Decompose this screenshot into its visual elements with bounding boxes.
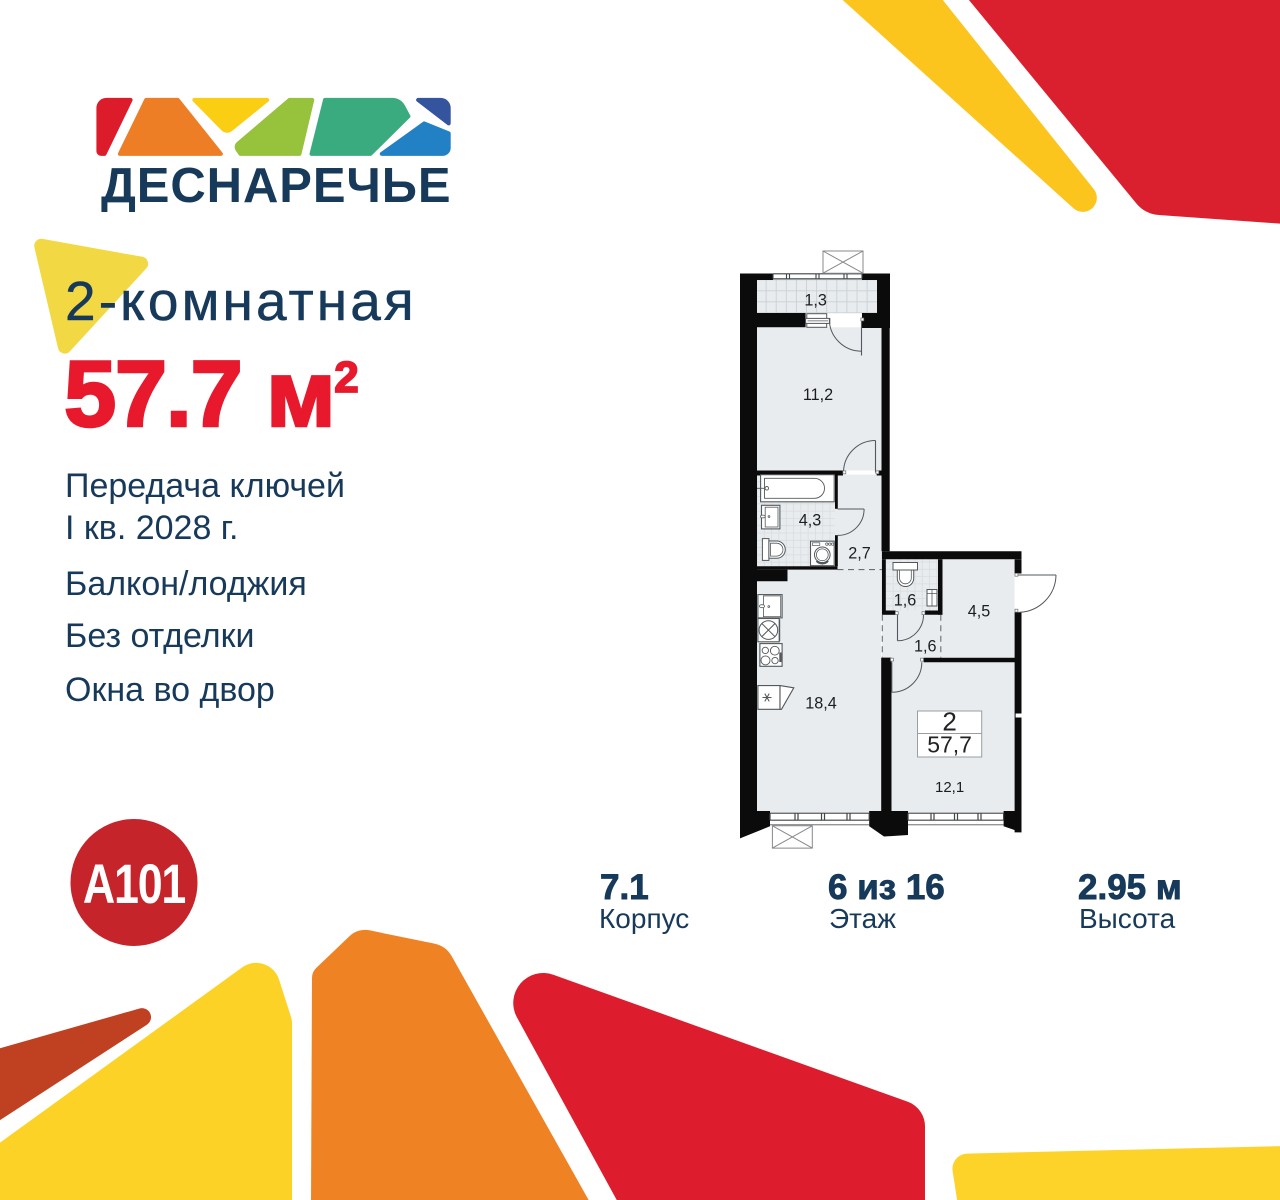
svg-text:11,2: 11,2: [803, 386, 833, 404]
svg-text:1,3: 1,3: [804, 291, 827, 309]
svg-text:57,7: 57,7: [927, 732, 972, 758]
svg-text:18,4: 18,4: [805, 695, 837, 713]
svg-text:1,6: 1,6: [894, 591, 917, 609]
svg-text:4,3: 4,3: [799, 512, 822, 530]
svg-text:2,7: 2,7: [848, 545, 871, 563]
svg-text:1,6: 1,6: [914, 638, 937, 656]
svg-text:12,1: 12,1: [935, 779, 964, 796]
svg-text:4,5: 4,5: [968, 603, 991, 621]
